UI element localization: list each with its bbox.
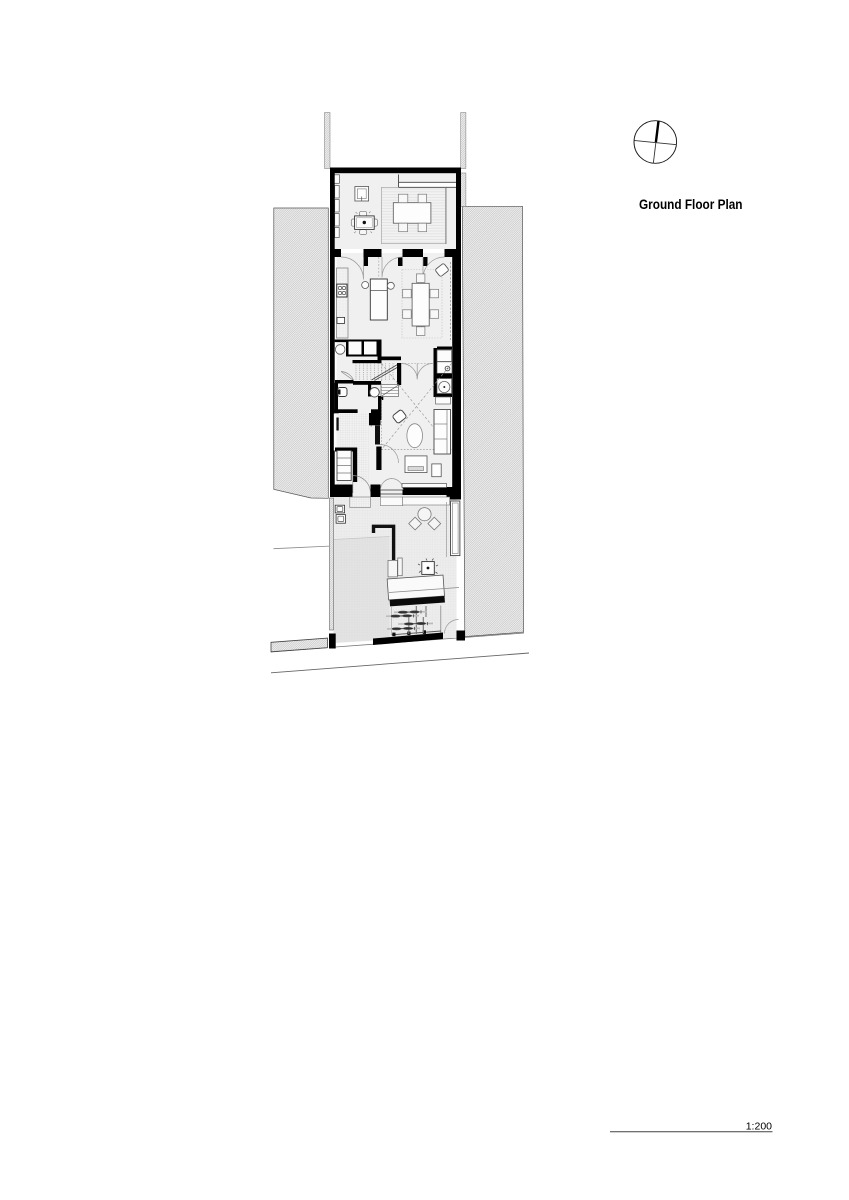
svg-text:1:200: 1:200 (746, 1121, 772, 1133)
svg-text:Ground Floor Plan: Ground Floor Plan (639, 197, 743, 213)
